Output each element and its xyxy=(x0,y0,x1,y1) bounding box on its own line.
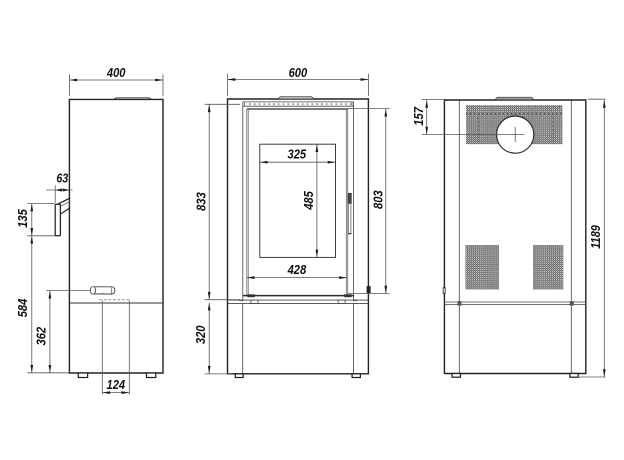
svg-text:157: 157 xyxy=(411,106,426,125)
svg-text:833: 833 xyxy=(194,192,209,211)
svg-text:63: 63 xyxy=(56,170,68,185)
svg-text:803: 803 xyxy=(371,190,386,209)
svg-text:362: 362 xyxy=(34,327,49,346)
svg-text:325: 325 xyxy=(288,146,307,161)
svg-text:428: 428 xyxy=(287,262,307,277)
svg-text:584: 584 xyxy=(15,299,30,318)
svg-text:320: 320 xyxy=(193,326,208,345)
svg-text:600: 600 xyxy=(289,65,308,80)
svg-text:124: 124 xyxy=(107,377,126,392)
svg-text:135: 135 xyxy=(15,208,30,227)
svg-text:1189: 1189 xyxy=(588,224,603,248)
svg-text:400: 400 xyxy=(106,65,125,80)
svg-text:485: 485 xyxy=(301,190,316,210)
